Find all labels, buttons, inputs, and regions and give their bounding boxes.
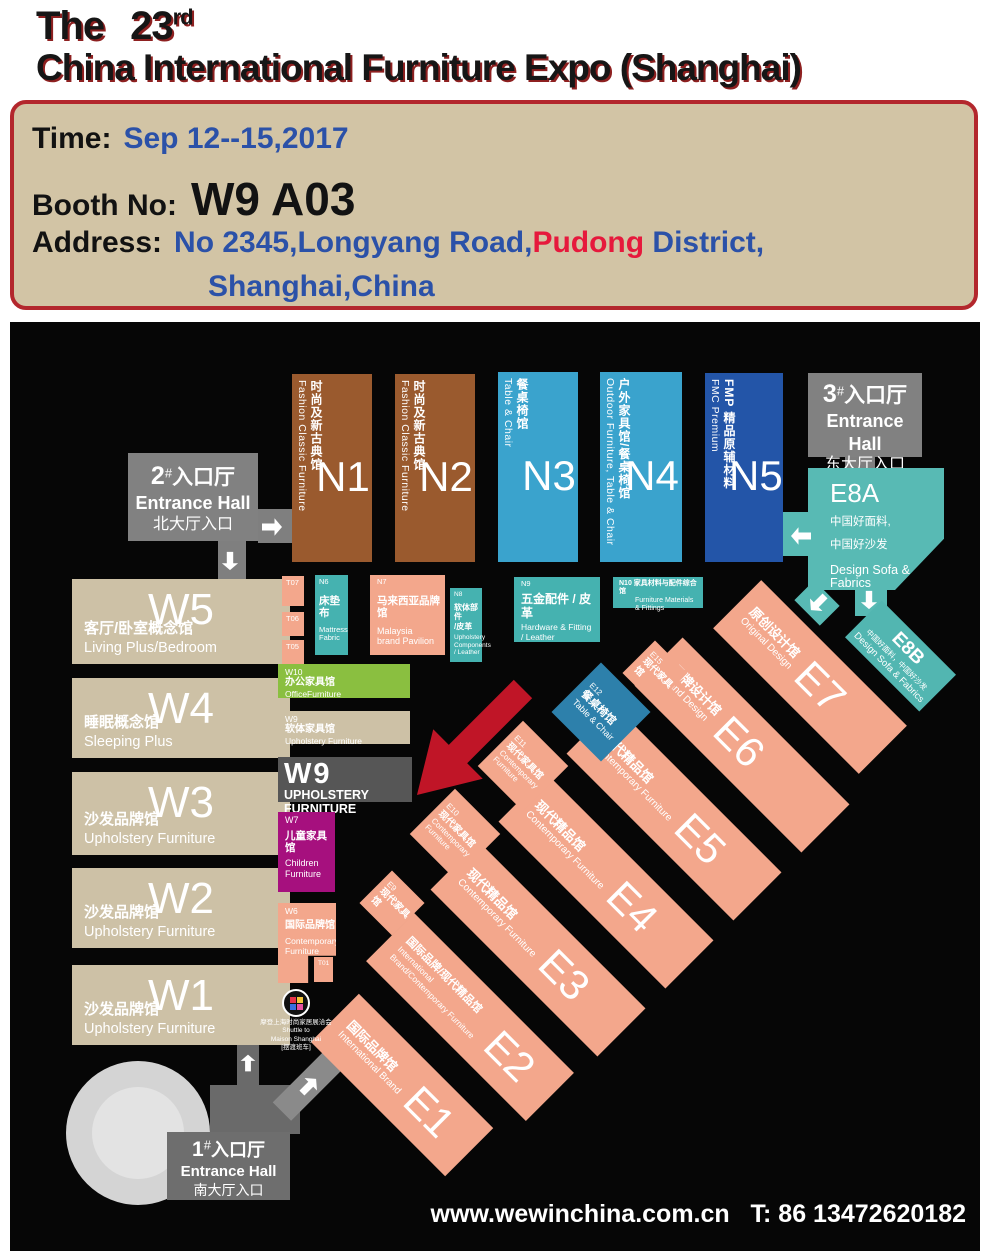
entrance2-sub: 北大厅入口 [128, 515, 258, 535]
hall-e4-desc: 现代精品馆Contemporary Furniture [522, 797, 617, 892]
entrance1-en: Entrance Hall [167, 1163, 290, 1182]
hall-n3-code: N3 [522, 452, 576, 500]
hall-w5-desc: 客厅/卧室概念馆Living Plus/Bedroom [84, 620, 217, 657]
entrance-hall-1: 1#入口厅 Entrance Hall 南大厅入口 [167, 1132, 290, 1200]
title-line2: China International Furniture Expo (Shan… [36, 48, 801, 89]
hall-w4: W4 睡眠概念馆Sleeping Plus [72, 678, 290, 758]
shuttle-en1: Shuttle to [256, 1027, 336, 1035]
hall-e8a-cn1: 中国好面料, [830, 517, 944, 529]
hall-n3: 餐桌椅馆Table & Chair N3 [498, 372, 578, 562]
shuttle-cn2: [摆渡班车] [256, 1044, 336, 1052]
hall-n1-code: N1 [316, 453, 370, 501]
entrance1-line1: 1#入口厅 [167, 1137, 290, 1163]
address-part2: District, [644, 226, 764, 260]
hall-n4-code: N4 [624, 452, 680, 500]
booth-n10: N10 家具材料与配件综合馆 Furniture Materials & Fit… [613, 577, 703, 608]
booth-t06: T06 [282, 612, 304, 636]
booth-n6: N6床垫布 MattressFabric [315, 575, 348, 655]
address-line2: Shanghai,China [208, 270, 435, 304]
maison-logo-icon [282, 989, 310, 1017]
footer-gap [730, 1200, 751, 1228]
hall-e8a-cn2: 中国好沙发 [830, 540, 944, 552]
hall-e1-desc: 国际品牌馆International Brand [335, 1018, 415, 1098]
hall-w3-desc: 沙发品牌馆Upholstery Furniture [84, 811, 215, 848]
hall-e8a: E8A 中国好面料, 中国好沙发 Design Sofa & Fabrics [808, 468, 944, 590]
booth-t01: T01 [314, 957, 333, 982]
time-value: Sep 12--15,2017 [123, 122, 348, 156]
booth-n9: N9五金配件 / 皮革 Hardware & Fitting/ Leather [514, 577, 600, 642]
arrow-left-icon [789, 524, 813, 548]
hall-w4-desc: 睡眠概念馆Sleeping Plus [84, 714, 173, 751]
booth-row: Booth No:W9 A03 [32, 172, 355, 226]
logo-square-pink [297, 1004, 303, 1010]
entrance2-en: Entrance Hall [128, 492, 258, 515]
booth-value: W9 A03 [191, 172, 355, 226]
hall-e2-desc: 国际品牌/现代精品馆International Brand/Contempora… [388, 935, 498, 1045]
shuttle-cn1: 摩登上海时尚家居展洽会 [256, 1019, 336, 1027]
address-part1: No 2345,Longyang Road, [174, 226, 532, 260]
hall-e8a-en: Design Sofa & Fabrics [830, 564, 944, 589]
arrow-down-icon [219, 550, 241, 572]
entrance-hall-2: 2#入口厅 Entrance Hall 北大厅入口 [128, 453, 258, 541]
hall-e8a-code: E8A [830, 480, 944, 506]
logo-square-red [290, 997, 296, 1003]
hall-e7-desc: 原创设计馆Original Design [737, 604, 806, 673]
address-highlight: Pudong [532, 226, 644, 260]
page-title: The23rd China International Furniture Ex… [36, 4, 801, 89]
booth-w7: W7儿童家具馆 ChildrenFurniture [278, 812, 335, 892]
hall-n2-code: N2 [419, 453, 473, 501]
floor-map: 时尚及新古典馆Fashion Classic Furniture N1 时尚及新… [10, 322, 980, 1251]
hall-n1: 时尚及新古典馆Fashion Classic Furniture N1 [292, 374, 372, 562]
entrance3-line1: 3#入口厅 [808, 379, 922, 410]
logo-square-yellow [297, 997, 303, 1003]
hall-n5-code: N5 [729, 452, 781, 500]
time-label: Time: [32, 122, 111, 156]
booth-label: Booth No: [32, 189, 177, 223]
website-text: www.wewinchina.com.cn [431, 1200, 730, 1228]
maison-shuttle-note: 摩登上海时尚家居展洽会 Shuttle to Maison Shanghai [… [256, 989, 336, 1053]
event-info-panel: Time:Sep 12--15,2017 Booth No:W9 A03 Add… [10, 100, 978, 310]
hall-n5: FMP 精品原辅材料FMC Premium N5 [705, 373, 783, 562]
hall-n2: 时尚及新古典馆Fashion Classic Furniture N2 [395, 374, 475, 562]
hall-e3-desc: 现代精品馆Contemporary Furniture [454, 865, 549, 960]
entrance-hall-3: 3#入口厅 Entrance Hall 东大厅入口 [808, 373, 922, 457]
booth-w9-highlight: W9 UPHOLSTERY FURNITURE [278, 757, 412, 802]
booth-t07: T07 [282, 576, 304, 606]
hall-w5: W5 客厅/卧室概念馆Living Plus/Bedroom [72, 579, 290, 664]
entrance3-en: Entrance Hall [808, 410, 922, 455]
booth-w9-small: W9软体家具馆Upholstery Furniture [278, 711, 410, 744]
hall-w2: W2 沙发品牌馆Upholstery Furniture [72, 868, 290, 948]
entrance2-line1: 2#入口厅 [128, 461, 258, 492]
arrow-down2-icon [858, 589, 880, 611]
hall-w2-desc: 沙发品牌馆Upholstery Furniture [84, 904, 215, 941]
booth-w9-code: W9 [284, 759, 412, 789]
arrow-right-icon [260, 515, 284, 539]
entrance1-sub: 南大厅入口 [167, 1182, 290, 1200]
address-label: Address: [32, 226, 162, 260]
hall-w3: W3 沙发品牌馆Upholstery Furniture [72, 772, 290, 855]
title-line1: The23rd [36, 4, 801, 48]
logo-square-blue [290, 1004, 296, 1010]
address-row: Address:No 2345,Longyang Road,Pudong Dis… [32, 226, 764, 260]
address-row2: Shanghai,China [32, 270, 435, 304]
phone-text: T: 86 13472620182 [751, 1200, 966, 1228]
booth-n7: N7马来西亚品牌馆 Malaysiabrand Pavilion [370, 575, 445, 655]
booth-n8: N8软体部件 /皮革 UpholsteryComponents/ Leather [450, 588, 482, 662]
arrow-up-icon [238, 1053, 258, 1073]
booth-w10: W10办公家具馆OfficeFurniture [278, 664, 410, 698]
hall-n4: 户外家具馆/餐桌椅馆Outdoor Furniture, Table & Cha… [600, 372, 682, 562]
time-row: Time:Sep 12--15,2017 [32, 122, 349, 156]
hall-w1-desc: 沙发品牌馆Upholstery Furniture [84, 1001, 215, 1038]
contact-bar: www.wewinchina.com.cn T: 86 13472620182 [431, 1200, 966, 1229]
